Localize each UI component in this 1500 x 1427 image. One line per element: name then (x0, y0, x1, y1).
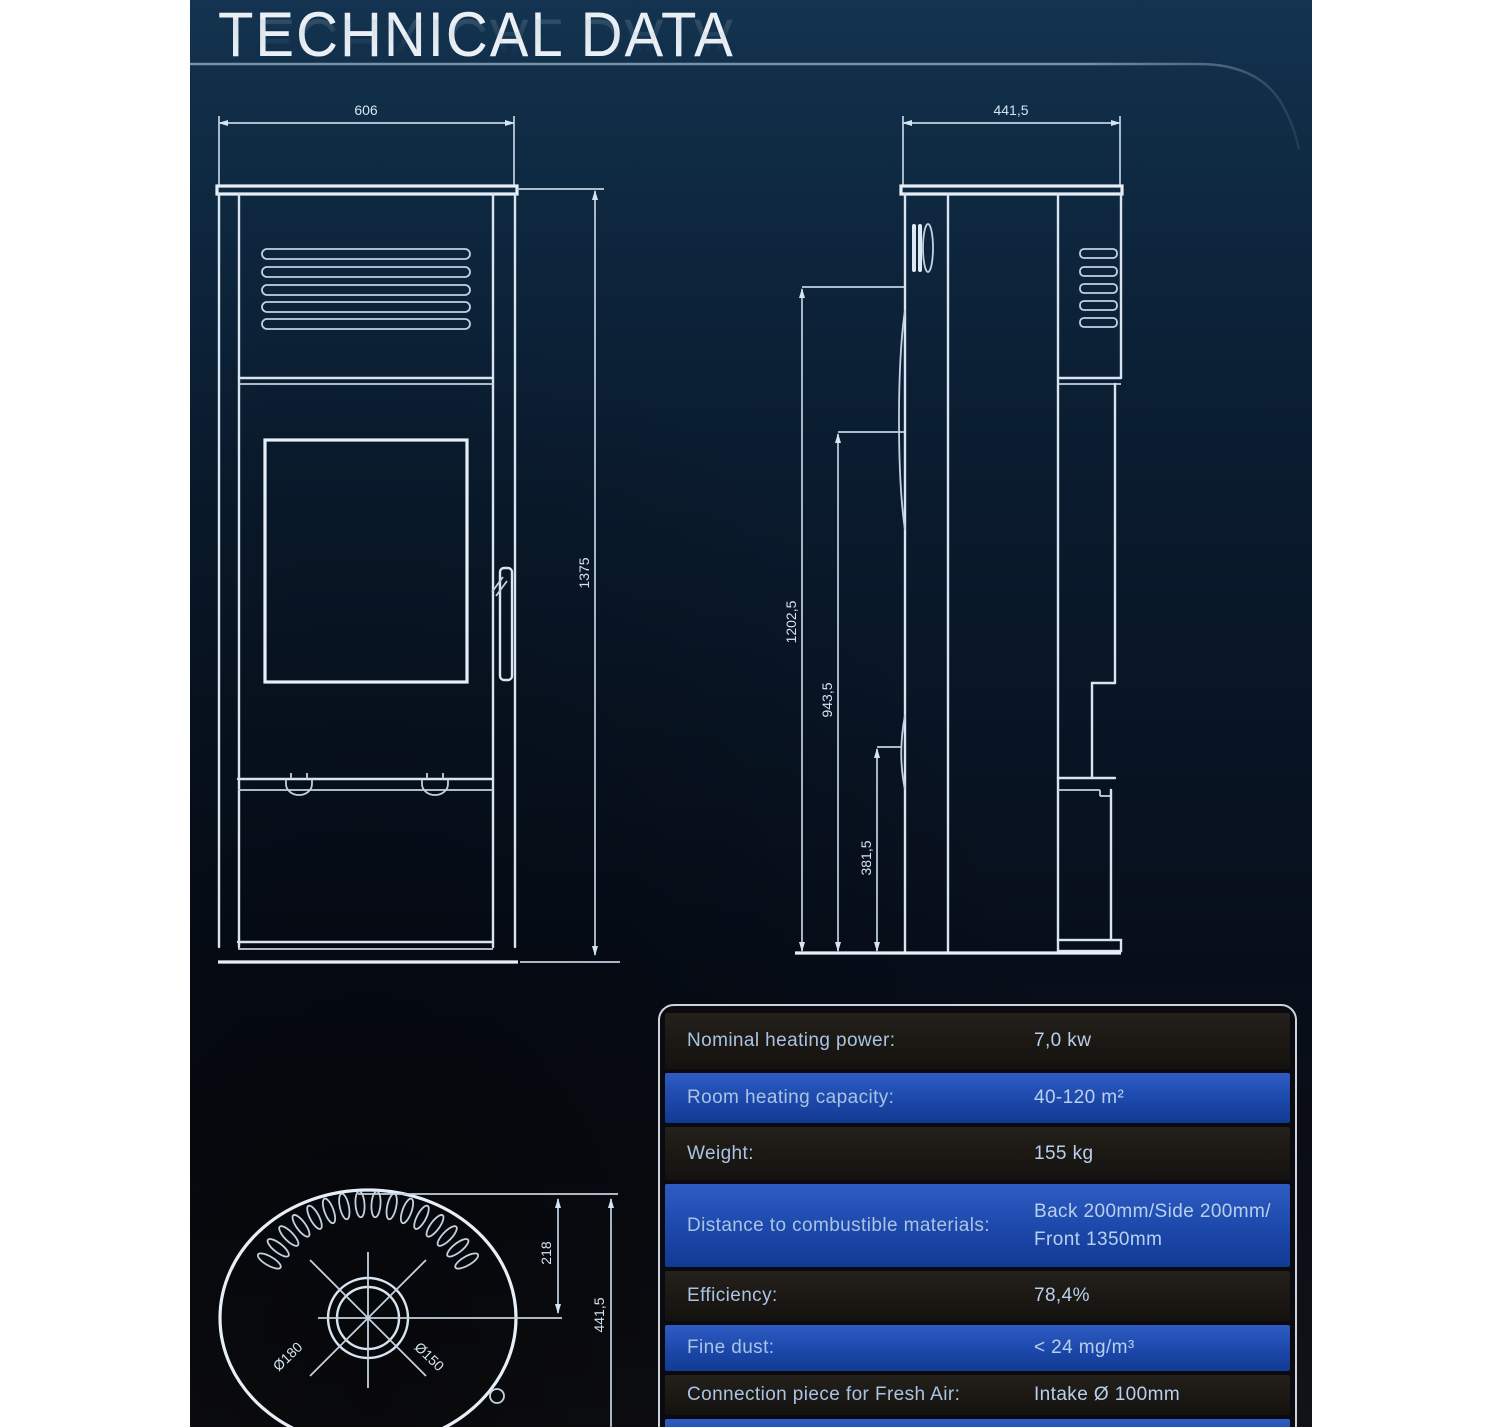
spec-label: Fine dust: (665, 1337, 1034, 1359)
front-width-label: 606 (354, 102, 378, 118)
technical-data-sheet: TECHNICAL DATA TECHNICAL DATA (190, 0, 1312, 1427)
spec-table: Nominal heating power: 7,0 kw Room heati… (658, 1004, 1297, 1427)
table-row: Room heating capacity: 40-120 m² (665, 1073, 1290, 1123)
spec-value-line1: Back 200mm/Side 200mm/ (1034, 1198, 1290, 1226)
spec-label: Room heating capacity: (665, 1087, 1034, 1109)
side-handle-detail (912, 224, 933, 272)
top-view-drawing: Ø180 Ø150 218 441,5 (220, 1190, 618, 1427)
front-view-drawing: 606 (217, 102, 620, 962)
spec-value: Intake Ø 100mm (1034, 1381, 1290, 1409)
side-height-low-label: 381,5 (858, 840, 874, 875)
side-height-total-label: 1202,5 (783, 600, 799, 643)
table-row: Fine dust: < 24 mg/m³ (665, 1325, 1290, 1371)
front-height-label: 1375 (576, 557, 592, 588)
page: TECHNICAL DATA TECHNICAL DATA (0, 0, 1500, 1427)
side-view-drawing: 441,5 (783, 102, 1122, 953)
table-row: Efficiency: 78,4% (665, 1271, 1290, 1321)
front-vent-slats (262, 249, 470, 329)
table-row: Weight: 155 kg (665, 1127, 1290, 1180)
front-door-glass (265, 440, 467, 682)
table-row: Distance to combustible materials: Back … (665, 1184, 1290, 1267)
top-flue-offset-label: 218 (538, 1241, 554, 1265)
side-vent-slats (1080, 249, 1117, 327)
front-door-handle (492, 568, 512, 680)
spec-value: 78,4% (1034, 1282, 1290, 1310)
spec-value: 155 kg (1034, 1140, 1290, 1168)
spec-label: Efficiency: (665, 1285, 1034, 1307)
table-row: Nominal heating power: 7,0 kw (665, 1013, 1290, 1069)
spec-value: < 24 mg/m³ (1034, 1334, 1290, 1362)
spec-label: Connection piece for Fresh Air: (665, 1384, 1034, 1406)
spec-label: Distance to combustible materials: (665, 1215, 1034, 1237)
top-dia-inner-label: Ø150 (412, 1339, 448, 1374)
top-depth-label: 441,5 (591, 1297, 607, 1332)
table-row: Connection piece for Fresh Air: Intake Ø… (665, 1375, 1290, 1415)
spec-value: 7,0 kw (1034, 1027, 1290, 1055)
front-hinge-detail (238, 773, 493, 795)
top-dia-outer-label: Ø180 (270, 1339, 306, 1374)
spec-value: 40-120 m² (1034, 1084, 1290, 1112)
spec-label: Weight: (665, 1143, 1034, 1165)
spec-value-line2: Front 1350mm (1034, 1226, 1290, 1254)
side-depth-label: 441,5 (993, 102, 1028, 118)
spec-value: Back 200mm/Side 200mm/ Front 1350mm (1034, 1198, 1290, 1253)
side-height-mid-label: 943,5 (819, 682, 835, 717)
spec-label: Nominal heating power: (665, 1030, 1034, 1052)
rim-knob (490, 1389, 504, 1403)
table-row-partial (665, 1419, 1290, 1427)
